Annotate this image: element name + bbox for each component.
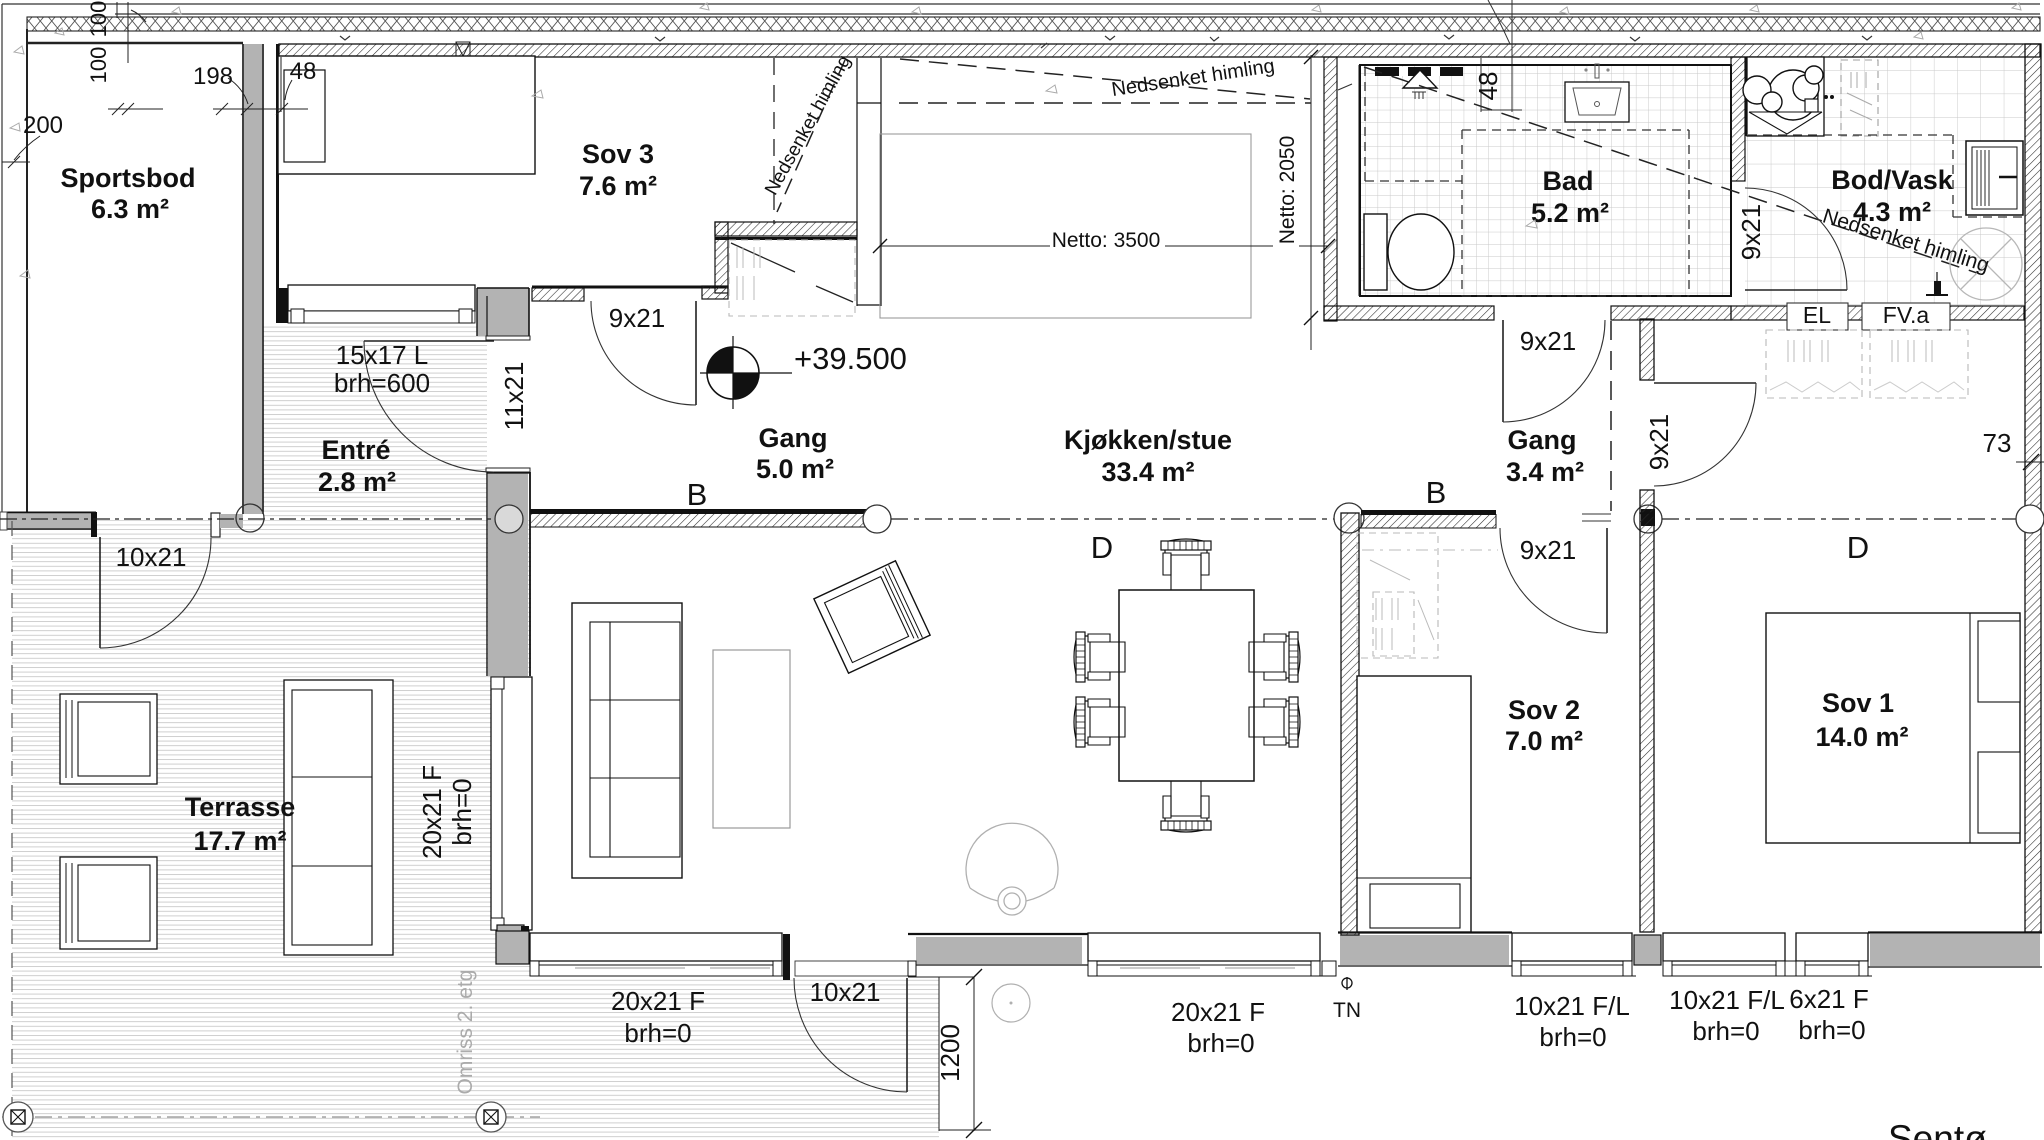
- svg-text:9x21: 9x21: [609, 303, 665, 333]
- svg-text:48: 48: [290, 58, 317, 85]
- svg-text:brh=600: brh=600: [334, 368, 430, 398]
- svg-text:Kjøkken/stue: Kjøkken/stue: [1064, 425, 1232, 455]
- svg-text:TN: TN: [1333, 999, 1361, 1022]
- svg-text:brh=0: brh=0: [1798, 1015, 1865, 1045]
- svg-text:9x21: 9x21: [1520, 535, 1576, 565]
- svg-text:Sov 2: Sov 2: [1508, 695, 1580, 725]
- svg-text:Bad: Bad: [1542, 166, 1593, 196]
- svg-text:brh=0: brh=0: [447, 778, 477, 845]
- svg-text:Terrasse: Terrasse: [185, 792, 296, 822]
- svg-text:20x21 F: 20x21 F: [611, 986, 705, 1016]
- svg-text:11x21: 11x21: [499, 362, 529, 431]
- svg-text:D: D: [1091, 530, 1113, 565]
- svg-text:Sportsbod: Sportsbod: [61, 163, 196, 193]
- svg-text:Netto: 3500: Netto: 3500: [1052, 229, 1161, 252]
- svg-text:198: 198: [193, 63, 233, 90]
- svg-text:Netto: 2050: Netto: 2050: [1276, 136, 1299, 245]
- svg-text:15x17 L: 15x17 L: [336, 340, 429, 370]
- svg-text:Bod/Vask: Bod/Vask: [1831, 165, 1954, 195]
- svg-text:6.3 m²: 6.3 m²: [91, 194, 169, 224]
- svg-text:10x21: 10x21: [810, 977, 881, 1007]
- svg-text:73: 73: [1983, 428, 2012, 458]
- svg-text:Entré: Entré: [321, 435, 390, 465]
- svg-text:1200: 1200: [935, 1024, 965, 1082]
- svg-text:200: 200: [23, 112, 63, 139]
- svg-text:brh=0: brh=0: [1539, 1022, 1606, 1052]
- svg-text:14.0 m²: 14.0 m²: [1815, 722, 1908, 752]
- svg-text:Omriss 2. etg: Omriss 2. etg: [454, 970, 477, 1095]
- svg-text:17.7 m²: 17.7 m²: [193, 826, 286, 856]
- svg-text:FV.a: FV.a: [1883, 302, 1930, 328]
- svg-text:10x21: 10x21: [116, 542, 187, 572]
- svg-text:7.0 m²: 7.0 m²: [1505, 726, 1583, 756]
- svg-text:B: B: [687, 477, 708, 512]
- svg-text:9x21: 9x21: [1520, 326, 1576, 356]
- svg-text:Sov 1: Sov 1: [1822, 688, 1894, 718]
- svg-text:6x21 F: 6x21 F: [1789, 984, 1869, 1014]
- svg-text:5.0 m²: 5.0 m²: [756, 454, 834, 484]
- svg-text:100: 100: [86, 47, 111, 84]
- svg-text:B: B: [1426, 475, 1447, 510]
- svg-text:EL: EL: [1803, 302, 1831, 328]
- svg-text:Gang: Gang: [1507, 425, 1576, 455]
- svg-text:Gang: Gang: [758, 423, 827, 453]
- svg-text:20x21 F: 20x21 F: [417, 765, 447, 859]
- svg-text:brh=0: brh=0: [1187, 1028, 1254, 1058]
- svg-text:D: D: [1847, 530, 1869, 565]
- svg-text:brh=0: brh=0: [624, 1018, 691, 1048]
- svg-text:+39.500: +39.500: [794, 341, 907, 376]
- svg-text:33.4 m²: 33.4 m²: [1101, 457, 1194, 487]
- svg-text:10x21 F/L: 10x21 F/L: [1514, 991, 1630, 1021]
- svg-text:100: 100: [86, 1, 111, 38]
- svg-text:9x21: 9x21: [1736, 204, 1766, 260]
- svg-text:2.8 m²: 2.8 m²: [318, 467, 396, 497]
- svg-text:Sov 3: Sov 3: [582, 139, 654, 169]
- svg-text:10x21 F/L: 10x21 F/L: [1669, 985, 1785, 1015]
- svg-text:48: 48: [1473, 72, 1503, 101]
- svg-text:Sentø: Sentø: [1888, 1118, 1987, 1140]
- svg-text:7.6 m²: 7.6 m²: [579, 171, 657, 201]
- svg-text:20x21 F: 20x21 F: [1171, 997, 1265, 1027]
- svg-text:3.4 m²: 3.4 m²: [1506, 457, 1584, 487]
- svg-text:5.2 m²: 5.2 m²: [1531, 198, 1609, 228]
- svg-text:brh=0: brh=0: [1692, 1016, 1759, 1046]
- svg-text:9x21: 9x21: [1644, 414, 1674, 470]
